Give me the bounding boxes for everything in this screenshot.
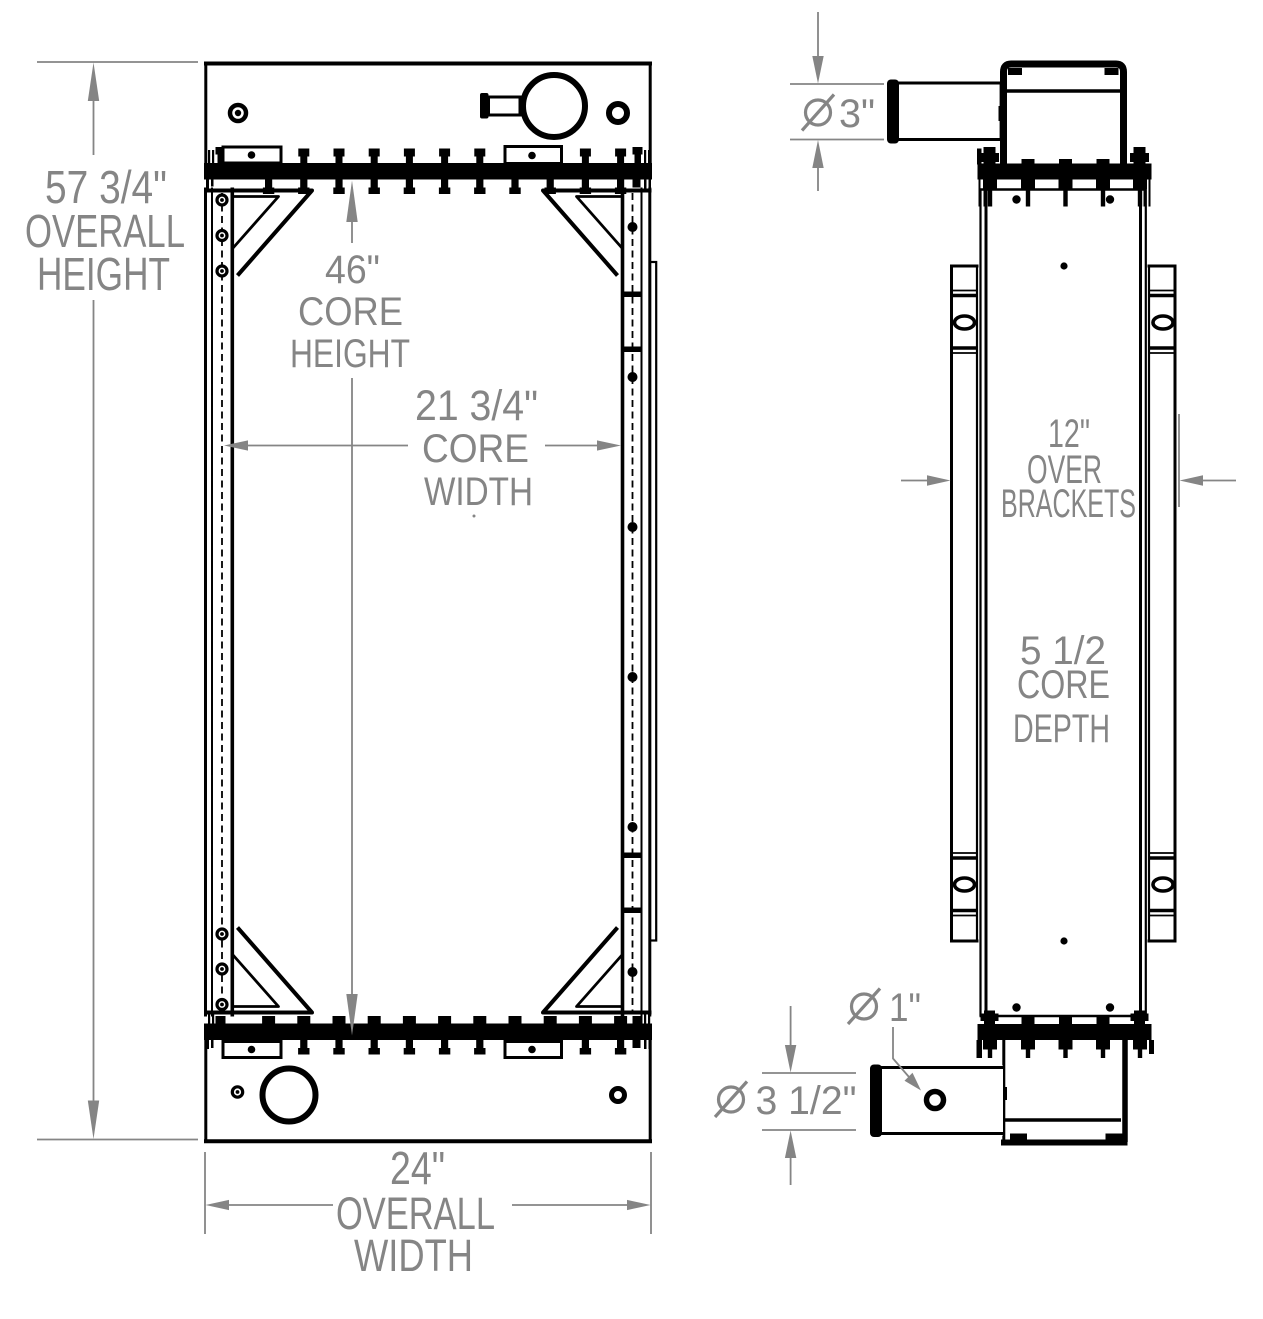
svg-text:DEPTH: DEPTH — [1013, 707, 1110, 751]
svg-text:46": 46" — [325, 248, 380, 292]
svg-text:WIDTH: WIDTH — [354, 1230, 473, 1281]
svg-text:HEIGHT: HEIGHT — [37, 248, 170, 300]
svg-text:CORE: CORE — [1017, 663, 1110, 707]
svg-text:24": 24" — [390, 1142, 445, 1194]
svg-text:WIDTH: WIDTH — [424, 470, 533, 514]
svg-text:1": 1" — [889, 986, 921, 1030]
svg-text:21 3/4": 21 3/4" — [415, 382, 538, 430]
svg-text:3": 3" — [839, 92, 875, 136]
svg-text:CORE: CORE — [298, 290, 403, 334]
svg-text:HEIGHT: HEIGHT — [290, 332, 410, 376]
svg-text:BRACKETS: BRACKETS — [1001, 482, 1136, 526]
svg-text:CORE: CORE — [422, 427, 529, 471]
svg-text:3 1/2": 3 1/2" — [756, 1079, 857, 1123]
